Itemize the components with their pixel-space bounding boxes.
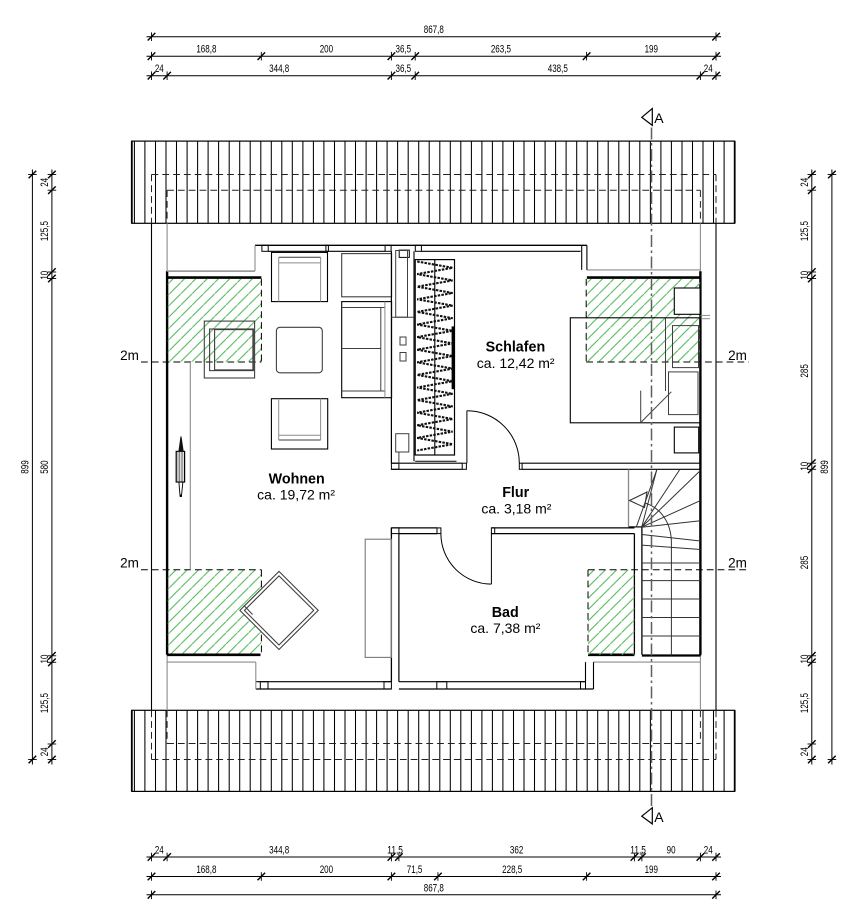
svg-text:125,5: 125,5	[799, 693, 811, 713]
svg-text:24: 24	[799, 178, 811, 187]
svg-text:90: 90	[667, 845, 676, 857]
svg-text:ca. 12,42 m²: ca. 12,42 m²	[477, 355, 555, 371]
svg-text:A: A	[654, 110, 664, 126]
svg-text:362: 362	[510, 845, 523, 857]
svg-text:867,8: 867,8	[424, 24, 444, 36]
svg-text:2m: 2m	[728, 348, 747, 363]
svg-text:ca. 3,18 m²: ca. 3,18 m²	[481, 500, 551, 516]
svg-text:ca. 19,72 m²: ca. 19,72 m²	[257, 487, 335, 503]
svg-text:36,5: 36,5	[396, 63, 412, 75]
svg-text:ca. 7,38 m²: ca. 7,38 m²	[470, 620, 540, 636]
svg-text:263,5: 263,5	[491, 44, 511, 56]
svg-text:Schlafen: Schlafen	[486, 340, 546, 356]
svg-text:24: 24	[155, 63, 164, 75]
svg-text:438,5: 438,5	[548, 63, 568, 75]
svg-text:10: 10	[39, 271, 51, 280]
svg-text:11,5: 11,5	[387, 845, 403, 857]
svg-text:24: 24	[704, 63, 713, 75]
svg-text:2m: 2m	[120, 556, 139, 571]
svg-text:125,5: 125,5	[799, 221, 811, 241]
svg-text:24: 24	[39, 178, 51, 187]
svg-text:344,8: 344,8	[269, 63, 289, 75]
svg-text:Wohnen: Wohnen	[269, 471, 325, 487]
svg-text:200: 200	[320, 44, 333, 56]
svg-text:899: 899	[819, 460, 831, 473]
svg-text:200: 200	[320, 864, 333, 876]
svg-text:199: 199	[645, 44, 658, 56]
svg-text:11,5: 11,5	[630, 845, 646, 857]
svg-text:71,5: 71,5	[407, 864, 423, 876]
svg-text:10: 10	[39, 655, 51, 664]
svg-text:199: 199	[645, 864, 658, 876]
svg-text:580: 580	[39, 460, 51, 473]
svg-text:36,5: 36,5	[396, 44, 412, 56]
svg-text:125,5: 125,5	[39, 693, 51, 713]
svg-text:24: 24	[799, 747, 811, 756]
svg-text:10: 10	[799, 655, 811, 664]
svg-text:899: 899	[19, 460, 31, 473]
svg-text:2m: 2m	[728, 556, 747, 571]
svg-text:Bad: Bad	[492, 605, 519, 621]
svg-text:344,8: 344,8	[269, 845, 289, 857]
svg-text:10: 10	[799, 271, 811, 280]
svg-text:24: 24	[155, 845, 164, 857]
svg-text:168,8: 168,8	[196, 44, 216, 56]
svg-text:168,8: 168,8	[196, 864, 216, 876]
svg-text:10: 10	[799, 462, 811, 471]
svg-text:2m: 2m	[120, 348, 139, 363]
svg-text:125,5: 125,5	[39, 221, 51, 241]
svg-text:24: 24	[704, 845, 713, 857]
svg-text:285: 285	[799, 556, 811, 569]
svg-text:285: 285	[799, 364, 811, 377]
svg-text:Flur: Flur	[502, 485, 529, 501]
svg-text:867,8: 867,8	[424, 882, 444, 894]
svg-text:24: 24	[39, 747, 51, 756]
svg-text:228,5: 228,5	[502, 864, 522, 876]
svg-text:A: A	[654, 809, 664, 825]
